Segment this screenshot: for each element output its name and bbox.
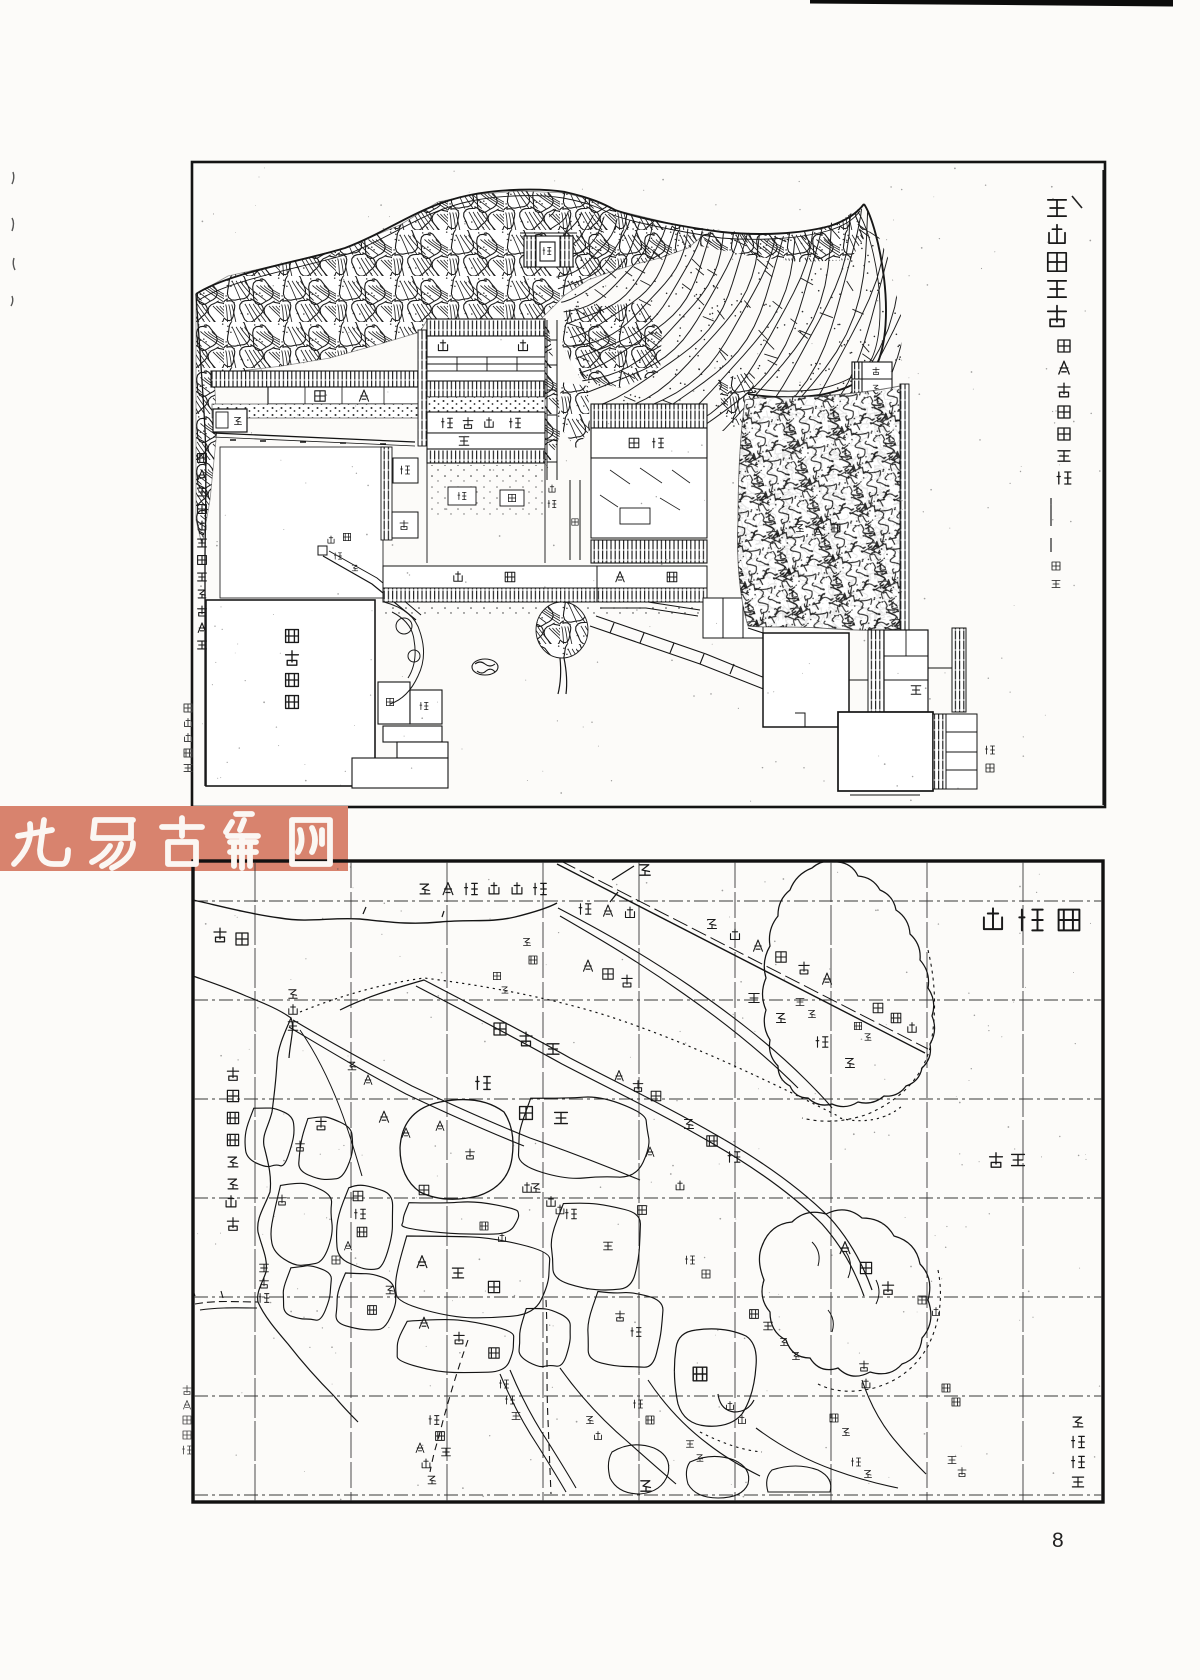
svg-text:8: 8	[1052, 1529, 1064, 1552]
